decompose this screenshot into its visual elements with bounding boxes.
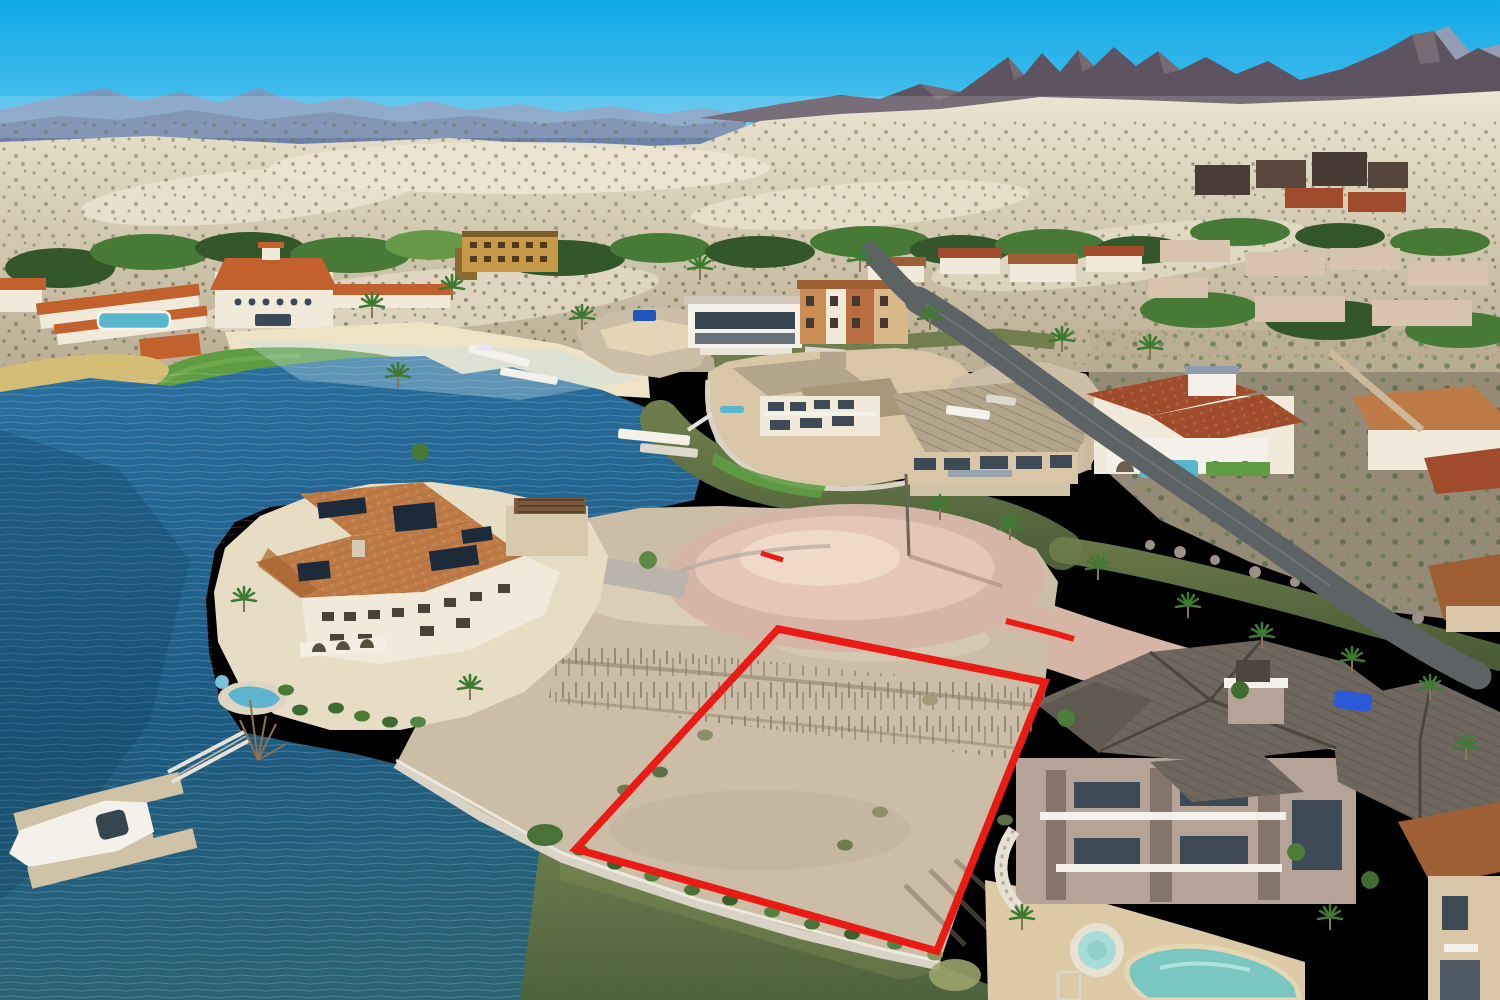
curved-staircase <box>1001 830 1018 908</box>
balcony-rail-lower <box>1056 864 1282 872</box>
blue-dumpster <box>633 310 656 321</box>
garage-court <box>506 498 588 556</box>
aerial-photo-canvas <box>0 0 1500 1000</box>
patio-awning <box>948 470 1012 477</box>
balcony-rail-upper <box>1040 812 1286 820</box>
chimney <box>352 540 365 557</box>
corner-house <box>1398 802 1500 1000</box>
mansion-driveway <box>600 570 686 586</box>
aerial-photo <box>0 0 1500 1000</box>
modern-glass-house <box>684 296 806 355</box>
resort-pool <box>98 312 170 329</box>
